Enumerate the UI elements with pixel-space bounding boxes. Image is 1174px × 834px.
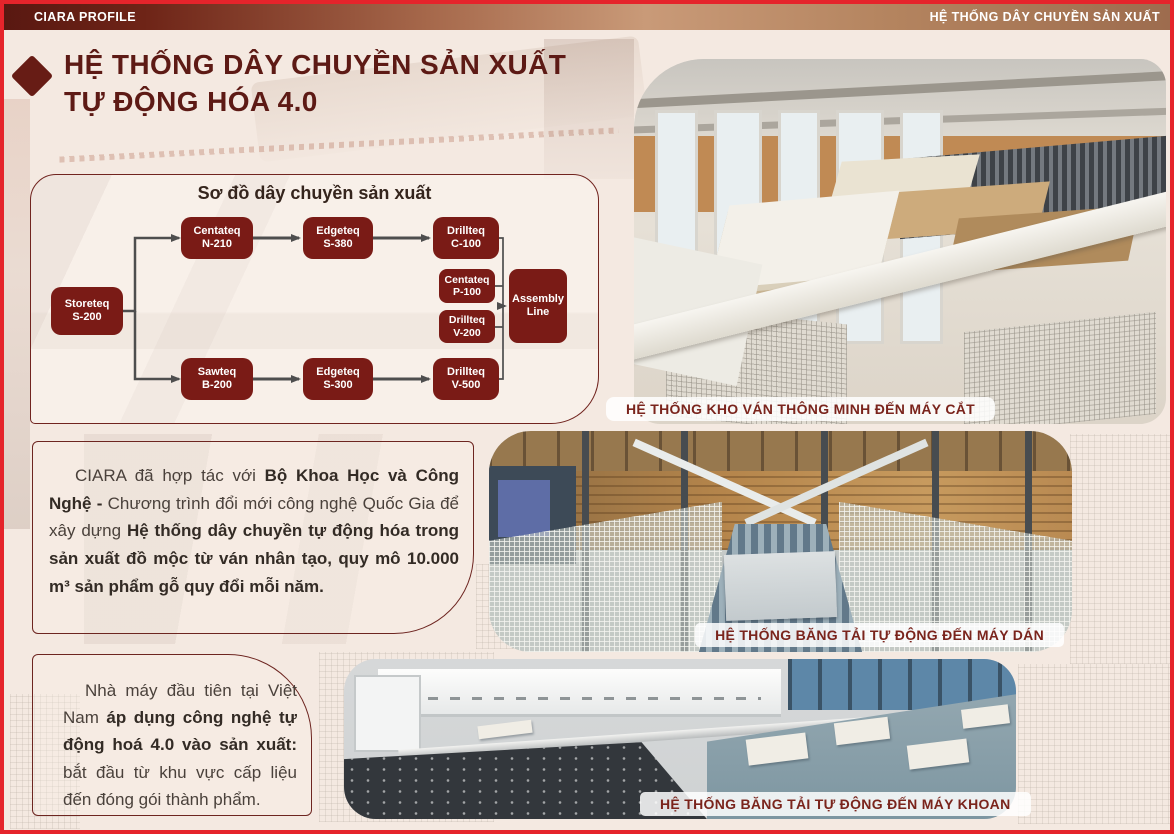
paragraph-2: Nhà máy đầu tiên tại Việt Nam áp dụng cô… <box>63 677 297 813</box>
node-label: Centateq <box>445 274 490 286</box>
flow-node-drillteq-c100: Drillteq C-100 <box>433 217 499 259</box>
node-label: V-200 <box>453 327 480 339</box>
photo3-machine-head <box>354 675 421 752</box>
node-label: B-200 <box>202 379 232 392</box>
page-title-line2: TỰ ĐỘNG HÓA 4.0 <box>64 83 566 120</box>
node-label: S-380 <box>323 238 352 251</box>
flow-node-edgeteq-s300: Edgeteq S-300 <box>303 358 373 400</box>
watermark-left-strip <box>4 99 30 529</box>
paragraph-1: CIARA đã hợp tác với Bộ Khoa Học và Công… <box>49 462 459 601</box>
brochure-page: CIARA PROFILE HỆ THỐNG DÂY CHUYỀN SẢN XU… <box>0 0 1174 834</box>
node-label: S-300 <box>323 379 352 392</box>
flow-node-storeteq: Storeteq S-200 <box>51 287 123 335</box>
flow-node-drillteq-v500: Drillteq V-500 <box>433 358 499 400</box>
photo3-gantry-detail <box>384 697 760 700</box>
node-label: Drillteq <box>449 314 485 326</box>
node-label: Drillteq <box>447 366 485 379</box>
node-label: Assembly <box>512 293 564 306</box>
flow-node-assembly-line: Assembly Line <box>509 269 567 343</box>
node-label: N-210 <box>202 238 232 251</box>
top-bar-left-label: CIARA PROFILE <box>4 10 136 24</box>
node-label: Storeteq <box>65 298 110 311</box>
node-label: Edgeteq <box>316 366 359 379</box>
node-label: Sawteq <box>198 366 237 379</box>
paragraph1-text: CIARA đã hợp tác với <box>75 466 265 485</box>
photo3-white-panel <box>478 720 533 739</box>
flowchart-panel: Sơ đồ dây chuyền sản xuất Storeteq S-200 <box>30 174 599 424</box>
node-label: P-100 <box>453 286 481 298</box>
page-title: HỆ THỐNG DÂY CHUYỀN SẢN XUẤT TỰ ĐỘNG HÓA… <box>64 46 566 120</box>
photo-conveyor-gluing <box>489 431 1072 652</box>
photo-panel-warehouse <box>634 59 1166 424</box>
photo3-machine-gantry <box>378 669 781 717</box>
flow-node-centateq-p100: Centateq P-100 <box>439 269 495 303</box>
node-label: Line <box>527 306 550 319</box>
paragraph2-text: bắt đầu từ khu vực cấp liệu đến đóng gói… <box>63 763 297 809</box>
node-label: S-200 <box>72 311 101 324</box>
node-label: Drillteq <box>447 225 485 238</box>
node-label: Centateq <box>193 225 240 238</box>
flow-node-centateq-n210: Centateq N-210 <box>181 217 253 259</box>
node-label: Edgeteq <box>316 225 359 238</box>
node-label: V-500 <box>452 379 481 392</box>
diamond-icon <box>11 55 53 97</box>
flow-node-drillteq-v200: Drillteq V-200 <box>439 310 495 343</box>
page-title-line1: HỆ THỐNG DÂY CHUYỀN SẢN XUẤT <box>64 46 566 83</box>
bottom-black-strip <box>85 830 1174 834</box>
photo2-cabin-window <box>498 480 550 537</box>
photo2-shelf-band <box>489 431 1072 475</box>
top-bar: CIARA PROFILE HỆ THỐNG DÂY CHUYỀN SẢN XU… <box>4 4 1170 30</box>
watermark-dotted-track <box>59 127 619 162</box>
flow-node-edgeteq-s380: Edgeteq S-380 <box>303 217 373 259</box>
flow-node-sawteq-b200: Sawteq B-200 <box>181 358 253 400</box>
photo2-caption: HỆ THỐNG BĂNG TẢI TỰ ĐỘNG ĐẾN MÁY DÁN <box>695 623 1064 647</box>
photo3-caption: HỆ THỐNG BĂNG TẢI TỰ ĐỘNG ĐẾN MÁY KHOAN <box>640 792 1031 816</box>
textbox-ministry-cooperation: CIARA đã hợp tác với Bộ Khoa Học và Công… <box>32 441 474 634</box>
top-bar-right-label: HỆ THỐNG DÂY CHUYỀN SẢN XUẤT <box>930 10 1170 24</box>
photo2-board-on-conveyor <box>724 551 837 621</box>
textbox-first-factory: Nhà máy đầu tiên tại Việt Nam áp dụng cô… <box>32 654 312 816</box>
watermark-mesh-4 <box>1018 664 1170 824</box>
photo1-caption: HỆ THỐNG KHO VÁN THÔNG MINH ĐẾN MÁY CẮT <box>606 397 995 421</box>
watermark-mesh-3 <box>1070 434 1170 664</box>
node-label: C-100 <box>451 238 481 251</box>
